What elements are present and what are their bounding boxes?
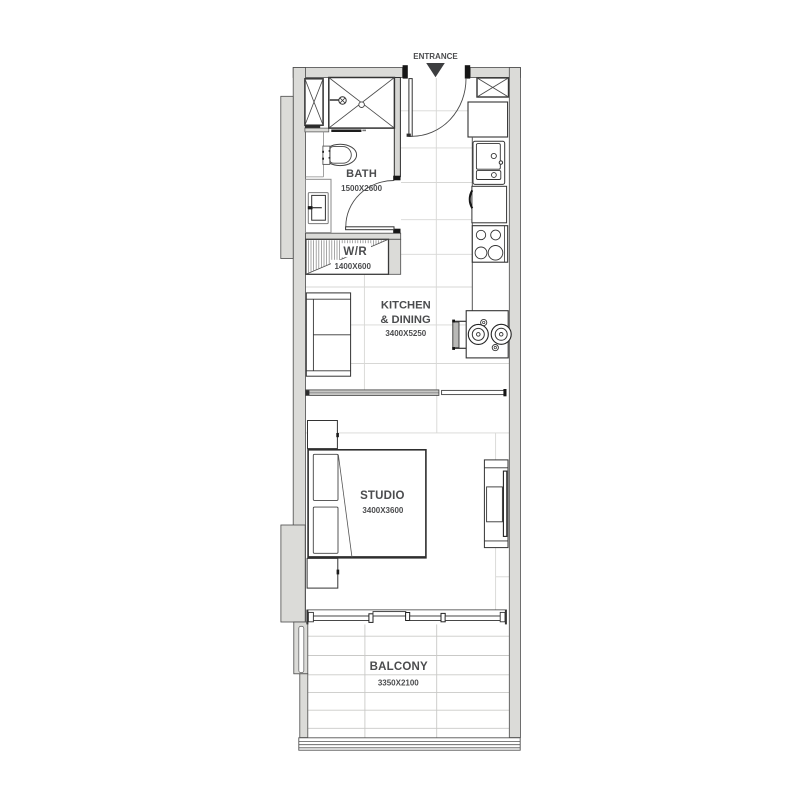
svg-text:W/R: W/R [343, 246, 367, 258]
svg-text:3350X2100: 3350X2100 [378, 678, 419, 687]
svg-text:1500X2600: 1500X2600 [341, 184, 382, 193]
svg-text:& DINING: & DINING [380, 314, 431, 326]
svg-text:KITCHEN: KITCHEN [381, 300, 431, 312]
svg-text:BALCONY: BALCONY [370, 661, 428, 673]
svg-text:1400X600: 1400X600 [334, 262, 371, 271]
svg-text:BATH: BATH [346, 168, 377, 180]
svg-text:3400X3600: 3400X3600 [362, 506, 403, 515]
svg-text:STUDIO: STUDIO [360, 490, 405, 502]
svg-text:3400X5250: 3400X5250 [385, 329, 426, 338]
svg-text:ENTRANCE: ENTRANCE [413, 52, 458, 61]
